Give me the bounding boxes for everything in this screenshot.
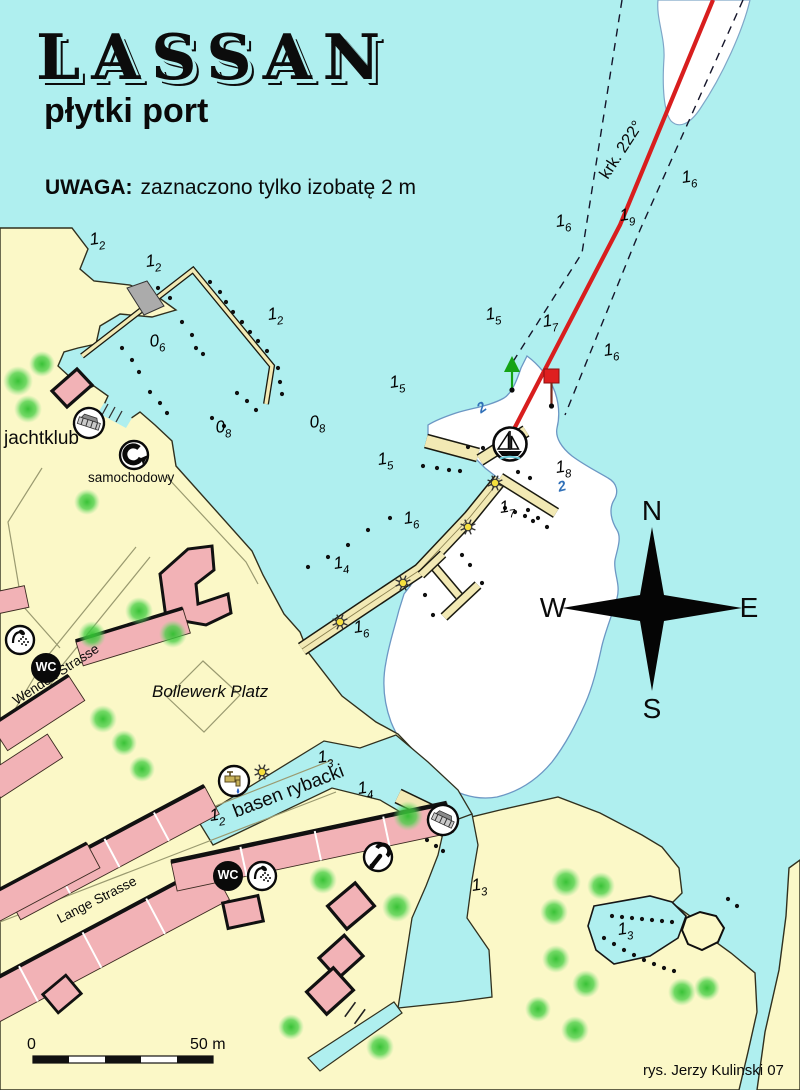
pile-dot [523, 514, 527, 518]
pile-dot [650, 918, 654, 922]
tree [309, 866, 337, 894]
scale-start-label: 0 [27, 1036, 36, 1054]
pile-dot [231, 310, 235, 314]
pile-dot [612, 942, 616, 946]
pile-dot [726, 897, 730, 901]
pile-dot [306, 565, 310, 569]
pile-dot [642, 958, 646, 962]
wc-label: WC [31, 660, 61, 674]
pile-dot [434, 844, 438, 848]
pile-dot [630, 916, 634, 920]
wc-label: WC [213, 868, 243, 882]
pile-dot [235, 391, 239, 395]
label-yacht-club: jachtklub [4, 428, 79, 450]
tree [278, 1014, 304, 1040]
pile-dot [256, 339, 260, 343]
pile-dot [248, 330, 252, 334]
pile-dot [670, 920, 674, 924]
harbor-chart: LASSAN płytki port UWAGA:zaznaczono tylk… [0, 0, 800, 1090]
pile-dot [528, 476, 532, 480]
pile-dot [460, 553, 464, 557]
pile-dot [280, 392, 284, 396]
pile-dot [435, 466, 439, 470]
pile-dot [194, 346, 198, 350]
tree [572, 970, 600, 998]
scale-bar [33, 1056, 213, 1063]
tree [129, 756, 155, 782]
tree [29, 351, 55, 377]
pile-dot [245, 399, 249, 403]
pile-dot [466, 445, 470, 449]
pile-dot [622, 948, 626, 952]
pile-dot [531, 519, 535, 523]
tree [125, 597, 153, 625]
label-car-crane: samochodowy [88, 470, 174, 485]
compass-west-label: W [538, 592, 568, 624]
pile-dot [148, 390, 152, 394]
tree [89, 705, 117, 733]
tree [3, 366, 33, 396]
pile-dot [278, 380, 282, 384]
pile-dot [346, 543, 350, 547]
pile-dot [208, 280, 212, 284]
pile-dot [458, 469, 462, 473]
tree [366, 1033, 394, 1061]
pile-dot [545, 525, 549, 529]
pile-dot [447, 468, 451, 472]
pile-dot [468, 563, 472, 567]
compass-south-label: S [637, 693, 667, 725]
pile-dot [425, 838, 429, 842]
tree [111, 730, 137, 756]
pile-dot [632, 953, 636, 957]
chart-warning: UWAGA:zaznaczono tylko izobatę 2 m [45, 176, 416, 200]
pile-dot [254, 408, 258, 412]
water-tap-icon [219, 766, 249, 796]
tree [551, 867, 581, 897]
pile-dot [672, 969, 676, 973]
chart-canvas [0, 0, 800, 1090]
pile-dot [602, 936, 606, 940]
pile-dot [480, 581, 484, 585]
pile-dot [120, 346, 124, 350]
tree [668, 978, 696, 1006]
pile-dot [165, 411, 169, 415]
pile-dot [137, 370, 141, 374]
pile-dot [326, 555, 330, 559]
harbor-sailboat-icon [494, 428, 527, 461]
pile-dot [218, 290, 222, 294]
pile-dot [156, 286, 160, 290]
pile-dot [610, 914, 614, 918]
tree [525, 996, 551, 1022]
pile-dot [423, 593, 427, 597]
wrench-repair-icon [364, 843, 392, 871]
pile-dot [130, 358, 134, 362]
pile-dot [652, 962, 656, 966]
pile-dot [265, 349, 269, 353]
pile-dot [536, 516, 540, 520]
pile-dot [276, 366, 280, 370]
label-bollewerk-platz: Bollewerk Platz [152, 682, 268, 702]
shower-icon [248, 862, 276, 890]
pile-dot [441, 849, 445, 853]
pile-dot [224, 300, 228, 304]
pile-dot [662, 966, 666, 970]
pile-dot [516, 470, 520, 474]
warning-bold: UWAGA: [45, 176, 133, 199]
pile-dot [388, 516, 392, 520]
attribution: rys. Jerzy Kulinski 07 [643, 1062, 784, 1079]
shower-icon [6, 626, 34, 654]
pile-dot [660, 919, 664, 923]
pile-dot [640, 917, 644, 921]
tree [382, 892, 412, 922]
warning-text: zaznaczono tylko izobatę 2 m [141, 176, 416, 199]
tree [14, 395, 42, 423]
tree [587, 872, 615, 900]
chart-title: LASSAN [36, 20, 391, 94]
compass-east-label: E [734, 592, 764, 624]
pile-dot [201, 352, 205, 356]
pile-dot [180, 320, 184, 324]
chart-subtitle: płytki port [44, 92, 208, 131]
tree [393, 801, 423, 831]
tree [74, 489, 100, 515]
pile-dot [735, 904, 739, 908]
tree [542, 945, 570, 973]
tree [540, 898, 568, 926]
pile-dot [190, 333, 194, 337]
pile-dot [168, 296, 172, 300]
car-crane-icon [120, 441, 148, 469]
pile-dot [421, 464, 425, 468]
compass-north-label: N [637, 495, 667, 527]
pile-dot [526, 508, 530, 512]
pile-dot [240, 320, 244, 324]
pile-dot [481, 446, 485, 450]
tree [561, 1016, 589, 1044]
pile-dot [431, 613, 435, 617]
tree [159, 620, 187, 648]
pile-dot [158, 401, 162, 405]
scale-end-label: 50 m [190, 1036, 226, 1054]
tree [694, 975, 720, 1001]
pile-dot [366, 528, 370, 532]
